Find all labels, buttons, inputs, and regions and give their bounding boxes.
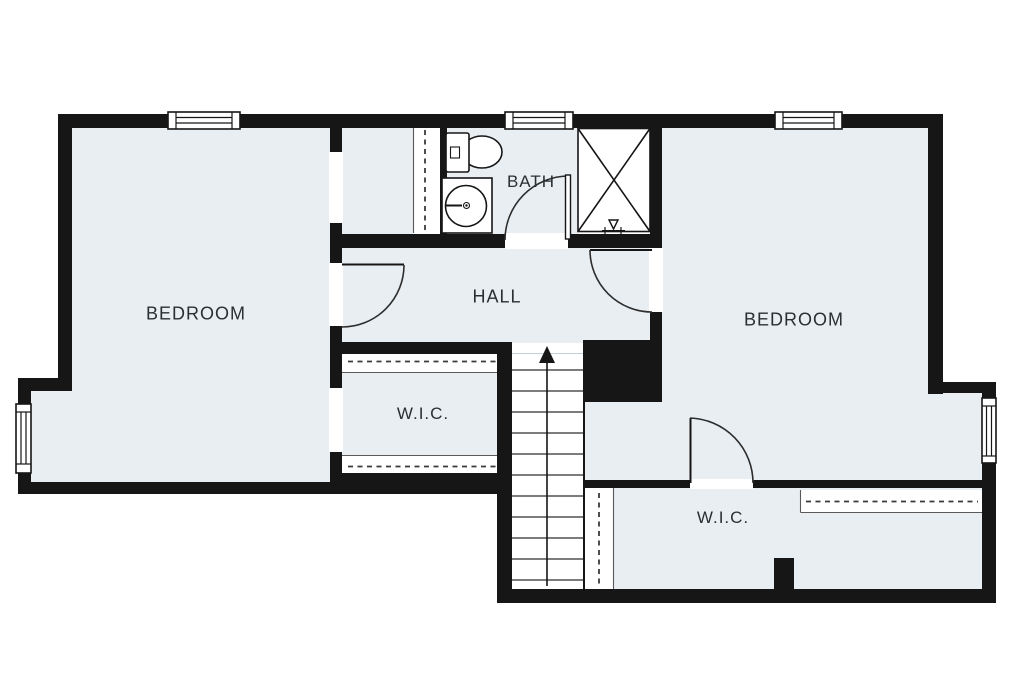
wic-left-label: W.I.C. [397, 404, 449, 424]
wic-left-opening [329, 388, 343, 452]
window-right [982, 398, 996, 463]
bedroom-right-floor [662, 128, 928, 393]
bedroom-right-floor-lower [662, 393, 982, 480]
window-left [16, 404, 31, 473]
bedroom-right-label: BEDROOM [744, 310, 844, 331]
closet-opening [329, 152, 343, 223]
window-top-right [775, 112, 842, 129]
bedroom-right-floor-left [583, 402, 662, 480]
wic-right-door-opening [690, 479, 753, 489]
window-top-left [168, 112, 240, 129]
window-top-bath [505, 112, 573, 129]
floor-plan-drawing [0, 0, 1024, 680]
bedroom-left-label: BEDROOM [146, 304, 246, 325]
bath-door-opening [505, 233, 568, 249]
floor-plan-canvas: BEDROOM BATH HALL BEDROOM W.I.C. W.I.C. [0, 0, 1024, 680]
hall-label: HALL [472, 287, 521, 308]
bath-label: BATH [507, 172, 555, 192]
bedroom-right-door-opening [649, 248, 663, 312]
sink-fixture [442, 178, 492, 233]
wic-right-label: W.I.C. [697, 508, 749, 528]
hall-left-door-opening [329, 263, 343, 326]
stairs-up-arrow [539, 346, 555, 586]
closet-floor [342, 128, 413, 234]
staircase [512, 346, 584, 589]
shower-stall [578, 129, 650, 236]
bedroom-left-floor-notch [30, 390, 74, 482]
